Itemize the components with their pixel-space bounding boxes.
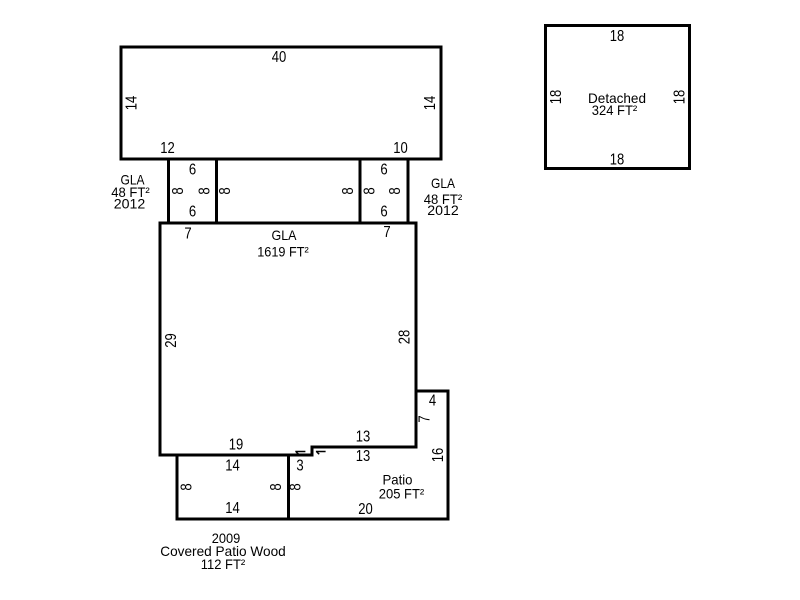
- svg-text:8: 8: [197, 187, 214, 194]
- svg-text:8: 8: [340, 187, 357, 194]
- svg-text:18: 18: [610, 28, 625, 45]
- svg-text:GLA: GLA: [431, 175, 456, 191]
- svg-text:13: 13: [356, 448, 371, 465]
- svg-text:14: 14: [124, 96, 141, 111]
- svg-text:6: 6: [380, 162, 387, 179]
- svg-text:29: 29: [163, 333, 180, 348]
- svg-text:14: 14: [225, 458, 240, 475]
- svg-text:19: 19: [229, 437, 244, 454]
- svg-text:13: 13: [356, 429, 371, 446]
- svg-text:18: 18: [548, 90, 565, 105]
- svg-text:18: 18: [610, 152, 625, 169]
- svg-text:14: 14: [422, 96, 439, 111]
- svg-text:GLA: GLA: [272, 227, 298, 243]
- svg-text:324 FT²: 324 FT²: [592, 102, 638, 118]
- svg-text:112 FT²: 112 FT²: [201, 556, 246, 572]
- svg-text:8: 8: [217, 187, 234, 194]
- svg-text:28: 28: [397, 330, 414, 345]
- svg-text:12: 12: [160, 140, 175, 157]
- svg-text:8: 8: [387, 187, 404, 194]
- svg-text:2012: 2012: [114, 196, 146, 212]
- svg-text:7: 7: [184, 226, 191, 243]
- svg-text:4: 4: [429, 393, 436, 410]
- svg-text:6: 6: [380, 204, 387, 221]
- svg-text:7: 7: [417, 415, 434, 422]
- svg-text:8: 8: [362, 187, 379, 194]
- svg-text:6: 6: [189, 204, 196, 221]
- svg-text:40: 40: [272, 49, 287, 66]
- svg-text:3: 3: [296, 458, 303, 475]
- svg-text:1619 FT²: 1619 FT²: [257, 244, 309, 260]
- svg-text:205 FT²: 205 FT²: [379, 486, 425, 502]
- svg-text:8: 8: [268, 483, 285, 490]
- svg-text:7: 7: [383, 224, 390, 241]
- svg-text:16: 16: [430, 448, 447, 463]
- svg-text:8: 8: [288, 483, 305, 490]
- svg-text:6: 6: [189, 162, 196, 179]
- svg-text:10: 10: [393, 140, 408, 157]
- svg-text:20: 20: [358, 501, 373, 518]
- svg-text:8: 8: [170, 187, 187, 194]
- svg-text:2012: 2012: [427, 202, 459, 218]
- svg-text:8: 8: [179, 483, 196, 490]
- svg-text:14: 14: [225, 500, 240, 517]
- svg-text:18: 18: [672, 90, 689, 105]
